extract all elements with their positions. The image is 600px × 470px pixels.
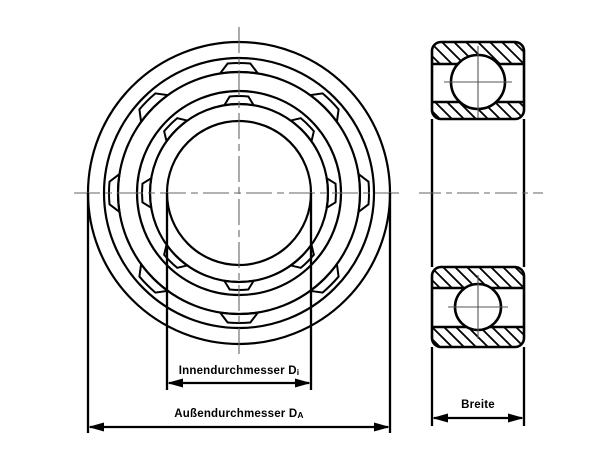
- bearing-drawing: Innendurchmesser Di Außendurchmesser DA …: [0, 0, 600, 470]
- inner-diameter-subscript: i: [297, 367, 300, 377]
- outer-diameter-subscript: A: [297, 410, 303, 420]
- inner-diameter-text: Innendurchmesser D: [179, 365, 297, 377]
- width-text: Breite: [461, 399, 495, 411]
- inner-diameter-label: Innendurchmesser Di: [139, 364, 339, 379]
- outer-diameter-label: Außendurchmesser DA: [139, 407, 339, 422]
- outer-diameter-text: Außendurchmesser D: [174, 408, 297, 420]
- front-view: [74, 27, 399, 358]
- width-label: Breite: [428, 398, 528, 412]
- width-dimension: [432, 347, 524, 426]
- section-view: [404, 40, 554, 353]
